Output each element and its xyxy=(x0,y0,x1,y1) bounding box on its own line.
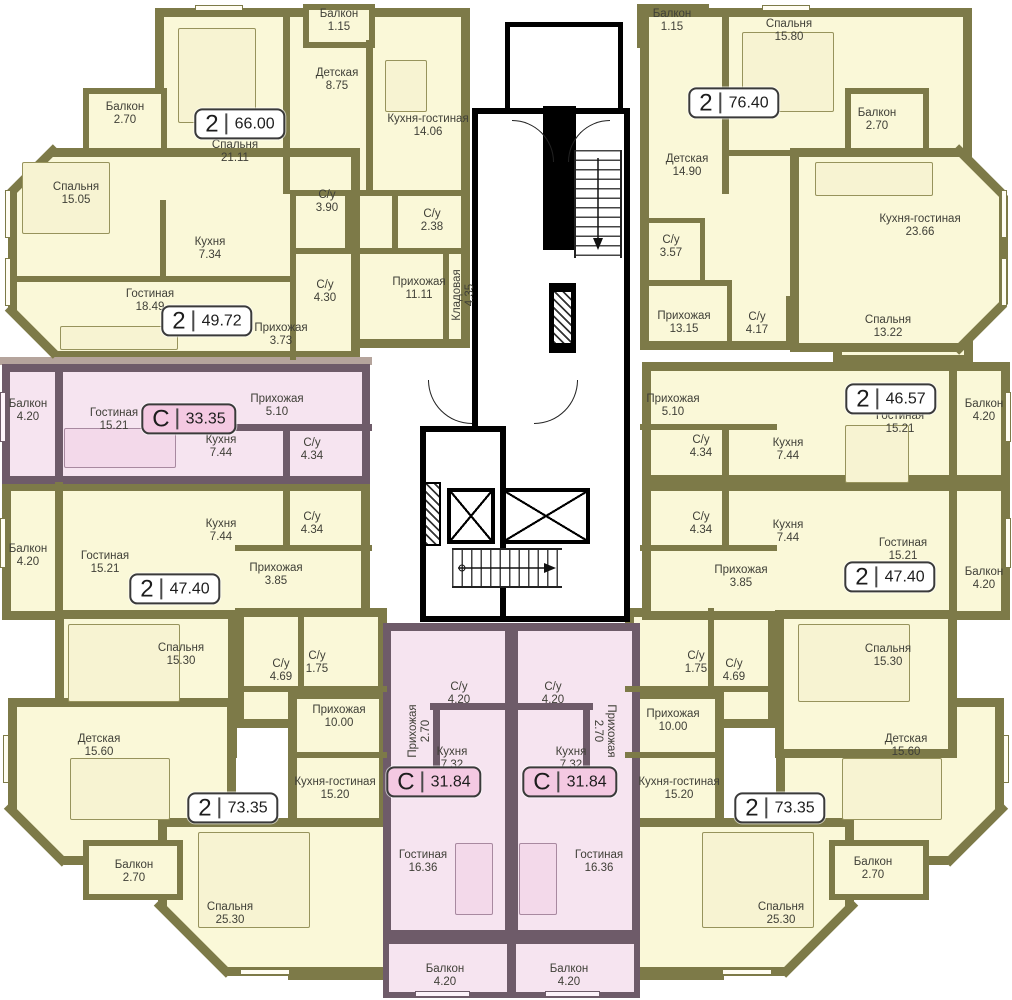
wall xyxy=(392,192,398,252)
wall xyxy=(722,488,729,545)
wall xyxy=(366,40,373,190)
room-label: Прихожая5.10 xyxy=(250,393,303,419)
room-label: Балкон1.15 xyxy=(653,8,692,34)
badge-room-count: 2 xyxy=(172,308,185,333)
room-label: Спальня15.80 xyxy=(766,18,812,44)
window xyxy=(1003,735,1009,783)
room-label: Спальня21.11 xyxy=(212,139,258,165)
room-label: С/у2.38 xyxy=(421,208,443,234)
room-label: Балкон4.20 xyxy=(965,398,1004,424)
wall xyxy=(700,218,705,282)
badge-area: 31.84 xyxy=(567,773,607,791)
window xyxy=(722,969,772,975)
room-label: Балкон2.70 xyxy=(854,856,893,882)
apartment-badge-31-84[interactable]: С31.84 xyxy=(386,766,481,797)
room-label: Кухня-гостиная23.66 xyxy=(879,213,960,239)
room-label: С/у4.69 xyxy=(723,658,745,684)
room-label: Прихожая13.15 xyxy=(657,310,710,336)
wall xyxy=(543,106,576,250)
wall xyxy=(290,752,387,758)
badge-divider xyxy=(193,311,195,332)
wall xyxy=(55,364,63,484)
room-label: Кухня7.34 xyxy=(195,236,226,262)
window xyxy=(1005,392,1011,442)
room-label: С/у1.75 xyxy=(306,650,328,676)
wall xyxy=(283,488,290,545)
window xyxy=(415,991,470,997)
room-label: С/у1.75 xyxy=(685,650,707,676)
apartment-badge-49-72[interactable]: 249.72 xyxy=(161,305,252,336)
apartment-badge-76-40[interactable]: 276.40 xyxy=(688,87,779,118)
furniture-sofa xyxy=(815,162,933,196)
badge-area: 33.35 xyxy=(186,410,226,428)
apartment-badge-73-35[interactable]: 273.35 xyxy=(187,792,278,823)
window xyxy=(545,991,600,997)
apartment-badge-33-35[interactable]: С33.35 xyxy=(141,403,236,434)
room-label: С/у3.90 xyxy=(316,189,338,215)
badge-area: 66.00 xyxy=(235,115,275,133)
room-label: Спальня13.22 xyxy=(865,314,911,340)
badge-area: 73.35 xyxy=(228,799,268,817)
room-label: Балкон4.20 xyxy=(9,543,48,569)
room-label: Балкон4.20 xyxy=(965,566,1004,592)
window xyxy=(195,5,243,11)
wall xyxy=(283,8,290,194)
room-label: С/у4.20 xyxy=(448,681,470,707)
room-label: Спальня15.05 xyxy=(53,181,99,207)
apartment-badge-47-40[interactable]: 247.40 xyxy=(844,561,935,592)
wall xyxy=(298,608,304,686)
wall xyxy=(283,428,290,484)
room-label: Прихожая5.10 xyxy=(646,393,699,419)
room-label: Спальня25.30 xyxy=(207,901,253,927)
wall xyxy=(949,362,957,484)
badge-divider xyxy=(720,93,722,114)
window xyxy=(5,258,11,306)
room-label: Прихожая3.85 xyxy=(714,564,767,590)
room-label: Балкон2.70 xyxy=(858,107,897,133)
room-label: Кухня7.44 xyxy=(206,518,237,544)
room-label: Кухня-гостиная14.06 xyxy=(387,113,468,139)
wall xyxy=(642,218,704,223)
room-label: Гостиная15.21 xyxy=(90,407,138,433)
wall xyxy=(640,545,777,551)
wall xyxy=(160,200,166,280)
wall xyxy=(345,192,351,252)
room-label: Балкон2.70 xyxy=(115,859,154,885)
room-label: Гостиная15.21 xyxy=(879,537,927,563)
room-label: С/у4.20 xyxy=(542,681,564,707)
window xyxy=(762,5,810,11)
window xyxy=(240,969,290,975)
room-label: С/у4.34 xyxy=(301,511,323,537)
room-label: Кухня7.44 xyxy=(206,434,237,460)
furniture-table xyxy=(385,60,427,112)
badge-room-count: 2 xyxy=(205,111,218,136)
wall xyxy=(727,150,877,156)
apartment-badge-66-00[interactable]: 266.00 xyxy=(194,108,285,139)
badge-divider xyxy=(422,772,424,793)
apartment-badge-31-84[interactable]: С31.84 xyxy=(522,766,617,797)
badge-room-count: 2 xyxy=(198,795,211,820)
room-label: Гостиная16.36 xyxy=(399,849,447,875)
room-label: С/у3.57 xyxy=(660,234,682,260)
room-label: Балкон1.15 xyxy=(320,8,359,34)
badge-area: 49.72 xyxy=(202,312,242,330)
badge-area: 47.40 xyxy=(885,568,925,586)
room-label: Гостиная16.36 xyxy=(575,849,623,875)
stairs-direction-arrow xyxy=(592,158,604,252)
wall xyxy=(430,703,513,710)
room-label: Спальня25.30 xyxy=(758,901,804,927)
room-label: Спальня15.30 xyxy=(865,643,911,669)
furniture-wardrobe xyxy=(455,843,493,915)
room-label: Кухня-гостиная15.20 xyxy=(294,776,375,802)
room-label: Прихожая2.70 xyxy=(407,704,433,757)
apartment-badge-46-57[interactable]: 246.57 xyxy=(845,383,936,414)
room-label: Балкон4.20 xyxy=(426,963,465,989)
badge-area: 76.40 xyxy=(729,94,769,112)
badge-room-count: 2 xyxy=(855,564,868,589)
window xyxy=(0,518,6,568)
window xyxy=(1005,518,1011,568)
shaft xyxy=(424,482,441,546)
wall xyxy=(949,482,957,620)
wall xyxy=(625,752,722,758)
room-label: Спальня15.30 xyxy=(158,642,204,668)
room-label: Детская15.60 xyxy=(885,733,928,759)
elevator-shaft xyxy=(502,488,590,544)
room-label: Детская15.60 xyxy=(78,733,121,759)
wall xyxy=(383,930,513,939)
badge-divider xyxy=(766,798,768,819)
wall xyxy=(55,482,63,620)
wall xyxy=(727,282,732,350)
window xyxy=(0,392,6,442)
badge-room-count: 2 xyxy=(140,576,153,601)
room-label: Кухня7.44 xyxy=(773,519,804,545)
room-label: Детская8.75 xyxy=(316,67,359,93)
wall xyxy=(8,276,293,282)
room-label: Прихожая11.11 xyxy=(392,276,445,302)
entrance-vestibule xyxy=(505,22,623,118)
room-label: Прихожая10.00 xyxy=(312,704,365,730)
room-label: С/у4.17 xyxy=(746,311,768,337)
badge-divider xyxy=(876,567,878,588)
badge-divider xyxy=(177,409,179,430)
badge-room-count: С xyxy=(152,406,169,431)
apartment-badge-73-35[interactable]: 273.35 xyxy=(734,792,825,823)
badge-room-count: С xyxy=(533,769,550,794)
badge-divider xyxy=(877,389,879,410)
room-label: С/у4.34 xyxy=(690,434,712,460)
room-label: С/у4.34 xyxy=(301,437,323,463)
wall xyxy=(625,686,777,692)
badge-area: 47.40 xyxy=(170,580,210,598)
door-arc xyxy=(428,380,472,424)
wall xyxy=(235,686,387,692)
furniture-bed xyxy=(842,758,942,820)
window xyxy=(3,735,9,783)
room-label: С/у4.34 xyxy=(690,511,712,537)
badge-room-count: С xyxy=(397,769,414,794)
room-label: Балкон4.20 xyxy=(9,398,48,424)
room-label: Прихожая2.70 xyxy=(591,704,617,757)
furniture-bed xyxy=(70,758,170,820)
wall xyxy=(640,280,732,286)
room-label: Кухня7.44 xyxy=(773,437,804,463)
room-label: Кухня-гостиная15.20 xyxy=(638,776,719,802)
badge-area: 73.35 xyxy=(775,799,815,817)
badge-room-count: 2 xyxy=(699,90,712,115)
wall xyxy=(235,424,372,431)
elevator-shaft xyxy=(447,488,495,544)
room-label: Кладовая4.35 xyxy=(451,269,477,321)
stairs-direction-arrow xyxy=(458,562,560,574)
badge-area: 31.84 xyxy=(431,773,471,791)
wall xyxy=(708,608,714,686)
furniture-wardrobe xyxy=(519,843,557,915)
window xyxy=(1001,190,1007,238)
badge-divider xyxy=(161,579,163,600)
room-label: Балкон2.70 xyxy=(106,101,145,127)
room-label: Прихожая3.73 xyxy=(254,322,307,348)
wall xyxy=(786,296,791,350)
wall xyxy=(510,930,640,939)
room-label: С/у4.30 xyxy=(314,279,336,305)
room-label: Детская14.90 xyxy=(666,153,709,179)
window xyxy=(5,190,11,238)
floor-plan: 266.00Балкон1.15Детская8.75Кухня-гостина… xyxy=(0,0,1012,1000)
room-label: Прихожая3.85 xyxy=(249,562,302,588)
badge-divider xyxy=(558,772,560,793)
apartment-badge-47-40[interactable]: 247.40 xyxy=(129,573,220,604)
wall xyxy=(235,545,372,551)
window xyxy=(1001,258,1007,306)
wall xyxy=(722,428,729,484)
room-label: С/у4.69 xyxy=(270,658,292,684)
room-label: Балкон4.20 xyxy=(550,963,589,989)
room-label: Гостиная15.21 xyxy=(81,550,129,576)
shaft xyxy=(552,290,573,345)
wall xyxy=(640,424,777,430)
badge-divider xyxy=(226,114,228,135)
badge-area: 46.57 xyxy=(886,390,926,408)
room-label: Прихожая10.00 xyxy=(646,708,699,734)
badge-room-count: 2 xyxy=(745,795,758,820)
badge-room-count: 2 xyxy=(856,386,869,411)
badge-divider xyxy=(219,798,221,819)
furniture-sofa xyxy=(60,326,178,350)
